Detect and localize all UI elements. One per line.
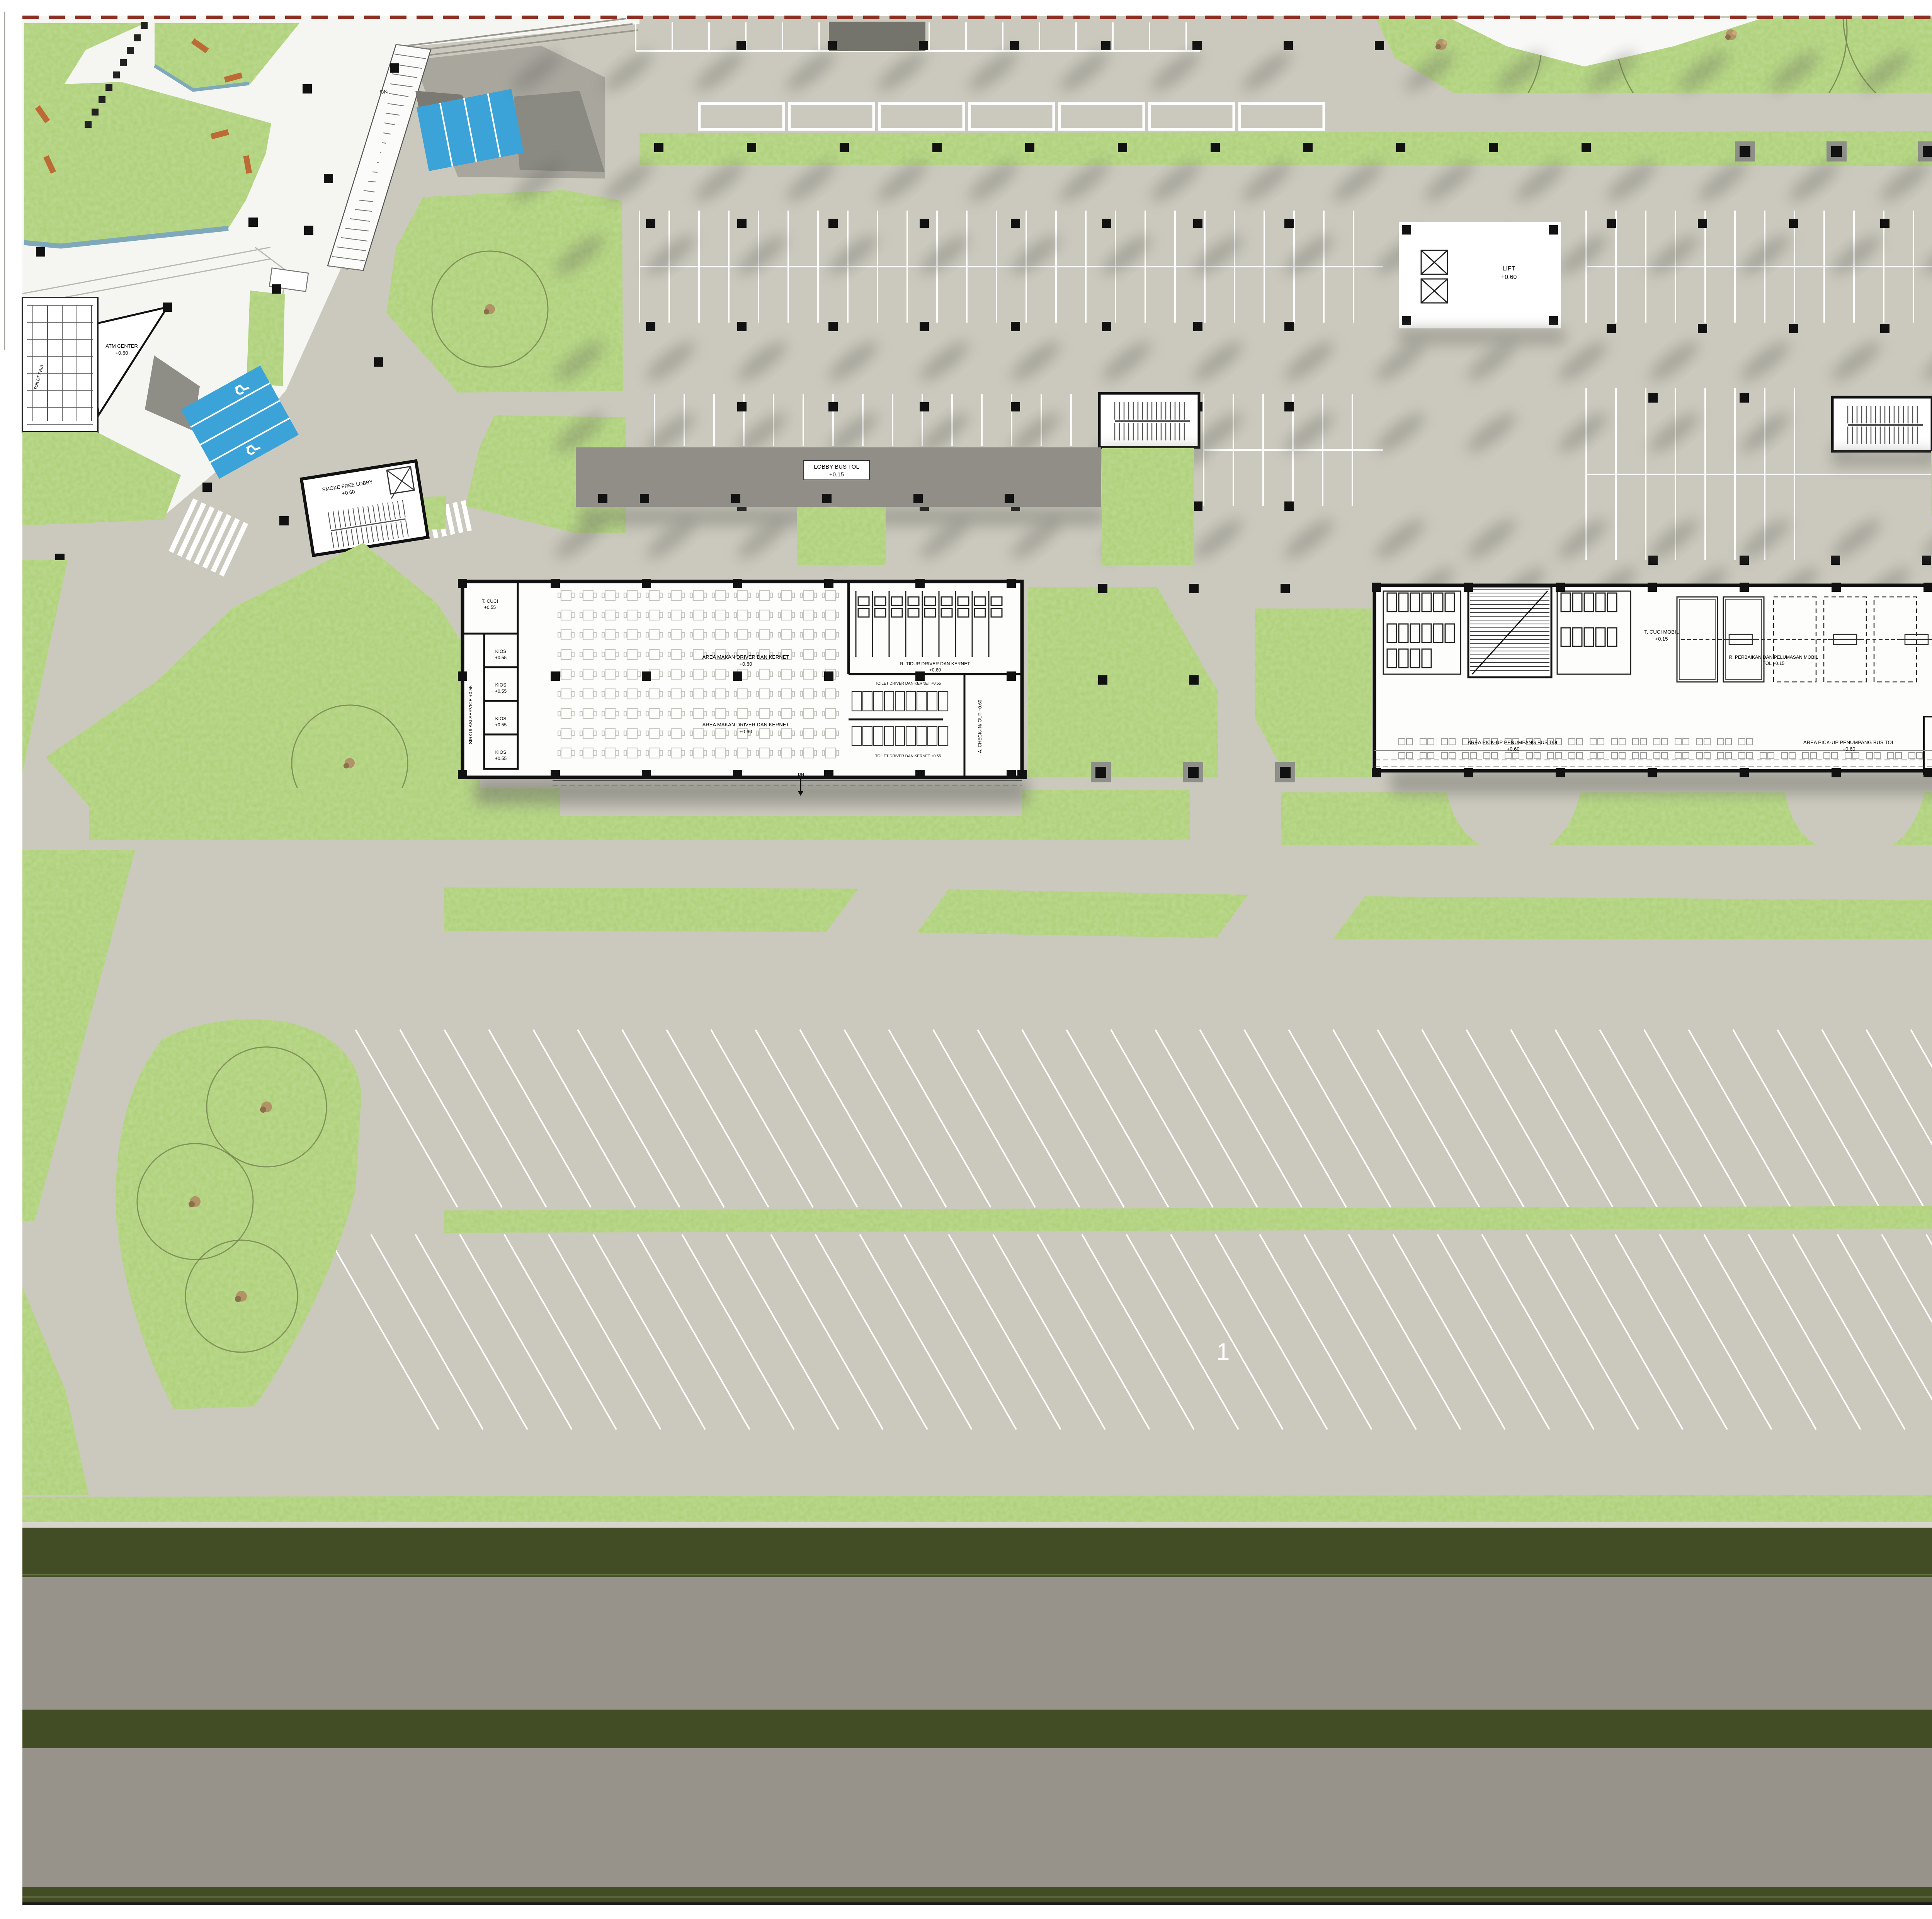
svg-text:+0.55: +0.55 (495, 655, 507, 660)
svg-text:+0.55: +0.55 (495, 722, 507, 727)
svg-text:DN: DN (379, 88, 388, 95)
svg-text:LIFT: LIFT (1503, 265, 1515, 272)
svg-text:+0.60: +0.60 (740, 661, 752, 667)
svg-text:SIRKULASI SERVICE +0.55: SIRKULASI SERVICE +0.55 (468, 685, 473, 744)
svg-text:T. CUCI: T. CUCI (482, 598, 498, 604)
svg-text:LOBBY BUS TOL: LOBBY BUS TOL (814, 464, 859, 470)
svg-text:+0.55: +0.55 (484, 605, 496, 610)
svg-text:1: 1 (1216, 1339, 1230, 1365)
svg-text:AREA MAKAN DRIVER DAN KERNET: AREA MAKAN DRIVER DAN KERNET (702, 722, 789, 727)
svg-text:TOILET DRIVER DAN KERNET +0.55: TOILET DRIVER DAN KERNET +0.55 (875, 682, 941, 686)
svg-text:KIOS: KIOS (495, 649, 507, 654)
svg-text:+0.55: +0.55 (495, 756, 507, 761)
svg-text:+0.60: +0.60 (740, 729, 752, 734)
svg-text:R. PERBAIKAN DAN PELUMASAN MOB: R. PERBAIKAN DAN PELUMASAN MOBIL (1729, 654, 1818, 660)
svg-text:+0.60: +0.60 (929, 667, 941, 673)
svg-text:+0.60: +0.60 (1507, 746, 1520, 752)
svg-text:T. CUCI MOBIL: T. CUCI MOBIL (1644, 629, 1679, 635)
svg-text:AREA PICK-UP PENUMPANG BUS TOL: AREA PICK-UP PENUMPANG BUS TOL (1803, 739, 1895, 745)
svg-text:KIOS: KIOS (495, 716, 507, 721)
svg-text:R. TIDUR DRIVER DAN KERNET: R. TIDUR DRIVER DAN KERNET (900, 661, 970, 666)
svg-text:+0.60: +0.60 (1501, 274, 1517, 280)
svg-text:+0.15: +0.15 (1655, 636, 1668, 642)
svg-text:AREA PICK-UP PENUMPANG BUS TOL: AREA PICK-UP PENUMPANG BUS TOL (1468, 739, 1559, 745)
svg-text:+0.60: +0.60 (116, 350, 128, 356)
svg-text:+0.60: +0.60 (1843, 746, 1855, 752)
svg-text:TOILET DRIVER DAN KERNET +0.55: TOILET DRIVER DAN KERNET +0.55 (875, 754, 941, 758)
svg-text:+0.15: +0.15 (829, 471, 844, 478)
svg-text:+0.55: +0.55 (495, 688, 507, 694)
svg-text:A. CHECK-IN/ OUT +0.60: A. CHECK-IN/ OUT +0.60 (977, 700, 983, 753)
svg-text:AREA MAKAN DRIVER DAN KERNET: AREA MAKAN DRIVER DAN KERNET (702, 654, 789, 660)
svg-text:KIOS: KIOS (495, 682, 507, 688)
svg-text:ATM CENTER: ATM CENTER (105, 343, 138, 349)
svg-text:DN: DN (798, 772, 804, 777)
svg-text:TOL +0.15: TOL +0.15 (1763, 661, 1785, 666)
svg-text:KIOS: KIOS (495, 750, 507, 755)
